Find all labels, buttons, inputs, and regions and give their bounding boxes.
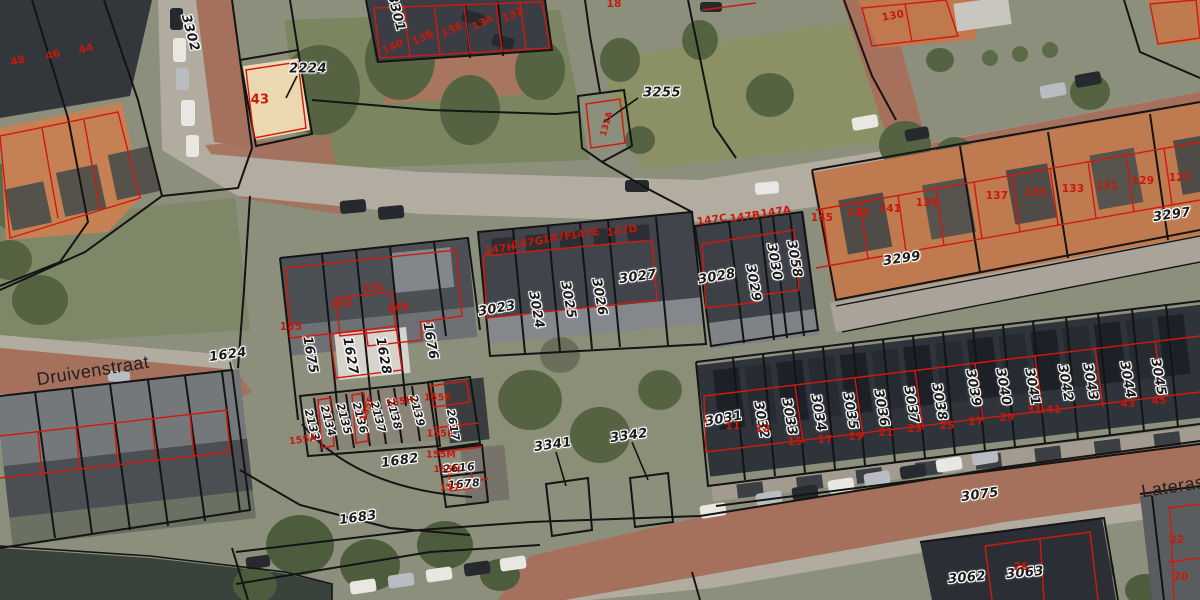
map-viewport[interactable]: 3302330122243255302330243025302630273028… bbox=[0, 0, 1200, 600]
aerial-basemap[interactable] bbox=[0, 0, 1200, 600]
